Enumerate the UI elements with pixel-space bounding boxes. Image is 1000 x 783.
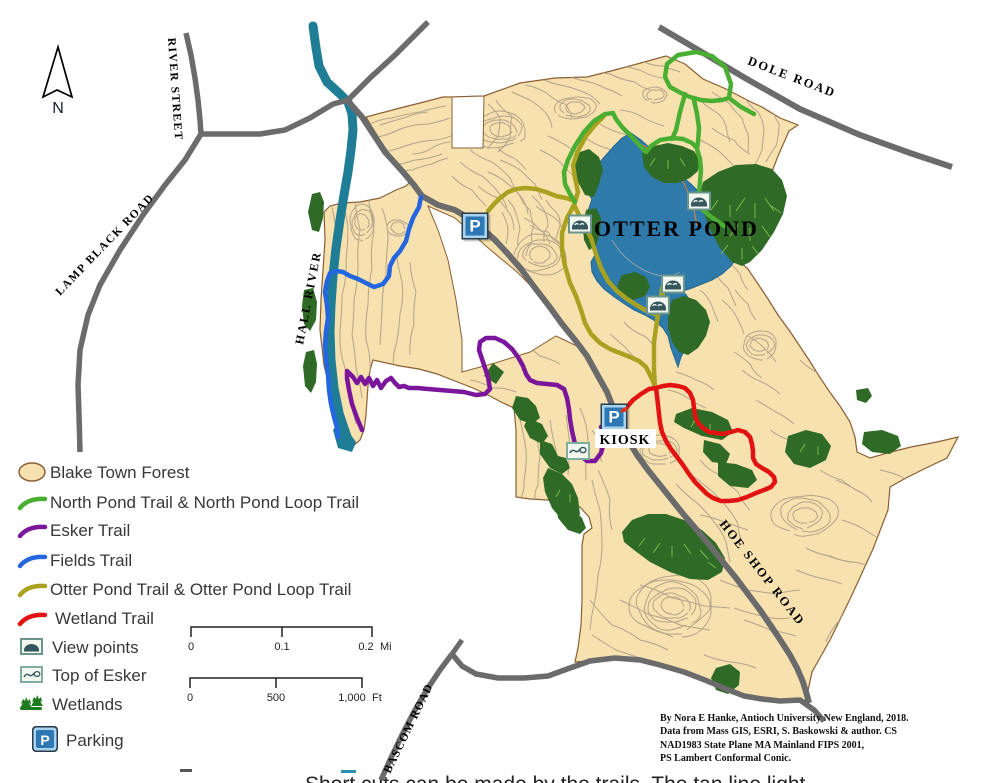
svg-text:Data from Mass GIS, ESRI, S. B: Data from Mass GIS, ESRI, S. Baskowski &… xyxy=(660,726,897,737)
svg-text:0: 0 xyxy=(188,641,194,653)
svg-text:Fields Trail: Fields Trail xyxy=(50,551,132,570)
svg-text:PS Lambert Conformal Conic.: PS Lambert Conformal Conic. xyxy=(660,753,792,764)
svg-text:P: P xyxy=(469,217,480,236)
svg-text:Otter Pond Trail & Otter Pond: Otter Pond Trail & Otter Pond Loop Trail xyxy=(50,580,351,599)
svg-text:0.2: 0.2 xyxy=(358,641,373,653)
svg-text:500: 500 xyxy=(267,692,285,704)
svg-text:Blake Town Forest: Blake Town Forest xyxy=(50,463,190,482)
svg-text:Wetlands: Wetlands xyxy=(52,695,123,714)
svg-text:KIOSK: KIOSK xyxy=(600,433,651,448)
svg-text:By Nora E Hanke, Antioch Unive: By Nora E Hanke, Antioch University New … xyxy=(660,713,909,724)
svg-text:OTTER POND: OTTER POND xyxy=(594,216,759,241)
svg-text:NAD1983 State Plane MA Mainlan: NAD1983 State Plane MA Mainland FIPS 200… xyxy=(660,740,865,751)
svg-text:Wetland Trail: Wetland Trail xyxy=(55,609,154,628)
svg-text:N: N xyxy=(52,100,64,117)
svg-text:P: P xyxy=(608,408,619,427)
svg-text:Ft: Ft xyxy=(372,692,382,704)
svg-text:Top of Esker: Top of Esker xyxy=(52,666,147,685)
svg-text:0.1: 0.1 xyxy=(274,641,289,653)
svg-text:P: P xyxy=(40,732,49,748)
svg-text:Parking: Parking xyxy=(66,731,124,750)
svg-text:North Pond Trail & North Pond: North Pond Trail & North Pond Loop Trail xyxy=(50,493,359,512)
svg-text:View points: View points xyxy=(52,638,139,657)
svg-text:1,000: 1,000 xyxy=(338,692,366,704)
svg-text:Short cuts can be made by the: Short cuts can be made by the trails. Th… xyxy=(305,773,806,783)
svg-text:0: 0 xyxy=(187,692,193,704)
svg-text:Mi: Mi xyxy=(380,641,392,653)
svg-text:Esker Trail: Esker Trail xyxy=(50,521,130,540)
